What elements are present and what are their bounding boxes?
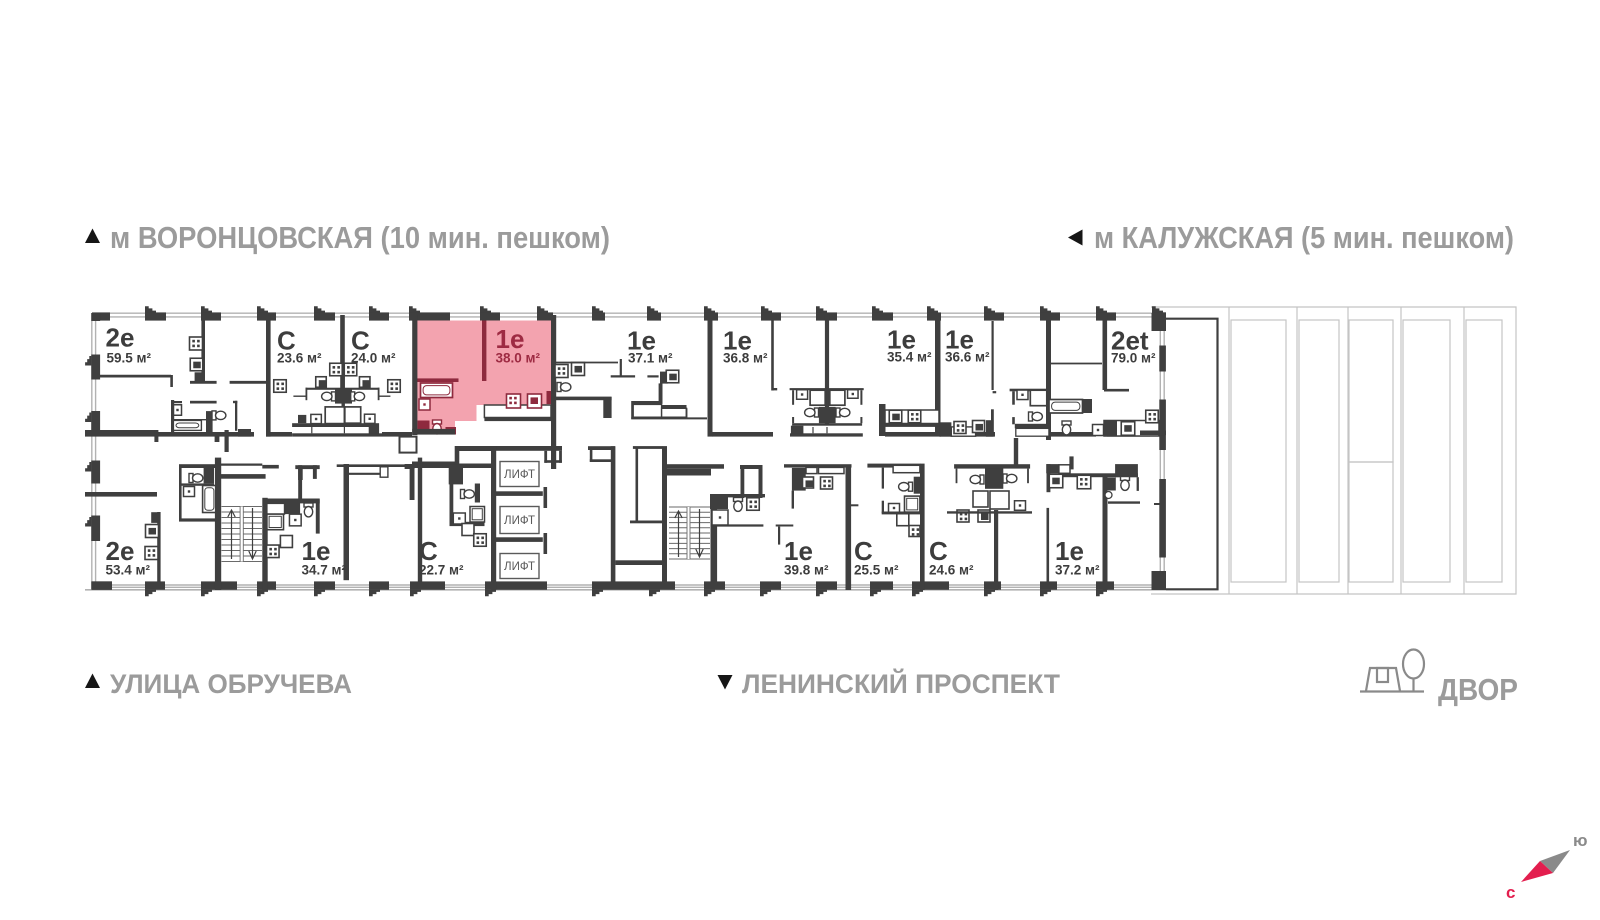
svg-text:м ВОРОНЦОВСКАЯ (10 мин. пешко: м ВОРОНЦОВСКАЯ (10 мин. пешком)	[110, 220, 610, 255]
svg-text:36.8 м²: 36.8 м²	[723, 351, 768, 366]
svg-text:2е: 2е	[106, 323, 135, 353]
svg-text:ЛИФТ: ЛИФТ	[504, 561, 535, 573]
svg-text:1е: 1е	[784, 536, 813, 566]
svg-text:1е: 1е	[1055, 536, 1084, 566]
svg-text:37.1 м²: 37.1 м²	[628, 351, 673, 366]
svg-text:25.5 м²: 25.5 м²	[854, 563, 899, 578]
svg-text:39.8 м²: 39.8 м²	[784, 563, 829, 578]
svg-text:24.0 м²: 24.0 м²	[351, 351, 396, 366]
svg-text:37.2 м²: 37.2 м²	[1055, 563, 1100, 578]
svg-text:С: С	[854, 536, 873, 566]
svg-text:ЛЕНИНСКИЙ ПРОСПЕКТ: ЛЕНИНСКИЙ ПРОСПЕКТ	[742, 668, 1060, 699]
svg-text:24.6 м²: 24.6 м²	[929, 563, 974, 578]
svg-text:с: с	[1506, 883, 1515, 902]
svg-text:36.6 м²: 36.6 м²	[945, 350, 990, 365]
svg-text:С: С	[419, 536, 438, 566]
svg-text:22.7 м²: 22.7 м²	[419, 563, 464, 578]
svg-text:23.6 м²: 23.6 м²	[277, 351, 322, 366]
svg-text:м КАЛУЖСКАЯ (5 мин. пешком): м КАЛУЖСКАЯ (5 мин. пешком)	[1094, 220, 1514, 255]
svg-text:2е: 2е	[106, 536, 135, 566]
svg-text:38.0 м²: 38.0 м²	[496, 351, 541, 366]
svg-text:УЛИЦА ОБРУЧЕВА: УЛИЦА ОБРУЧЕВА	[110, 669, 352, 699]
svg-text:ЛИФТ: ЛИФТ	[504, 515, 535, 527]
svg-text:79.0 м²: 79.0 м²	[1111, 351, 1156, 366]
svg-text:ЛИФТ: ЛИФТ	[504, 469, 535, 481]
svg-text:ДВОР: ДВОР	[1438, 672, 1518, 707]
svg-text:53.4 м²: 53.4 м²	[106, 563, 151, 578]
svg-text:ю: ю	[1573, 831, 1588, 850]
svg-text:34.7 м²: 34.7 м²	[302, 563, 347, 578]
svg-text:35.4 м²: 35.4 м²	[887, 350, 932, 365]
svg-text:1е: 1е	[302, 536, 331, 566]
svg-text:1е: 1е	[496, 324, 525, 354]
svg-text:59.5 м²: 59.5 м²	[107, 351, 152, 366]
svg-text:С: С	[929, 536, 948, 566]
